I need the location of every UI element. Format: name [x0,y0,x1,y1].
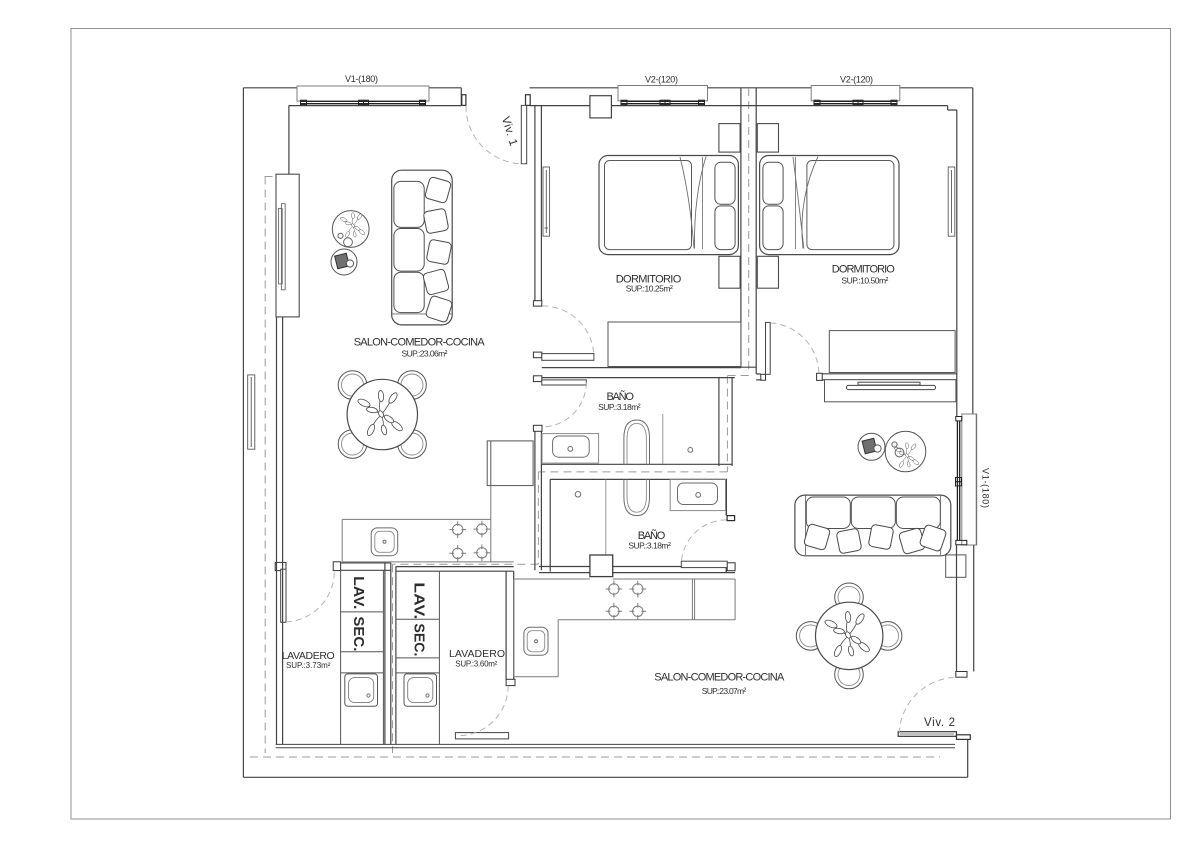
svg-text:V1-(180): V1-(180) [345,74,378,84]
svg-text:V1-(180): V1-(180) [981,468,991,508]
svg-text:SEC.: SEC. [350,616,367,651]
svg-text:LAVADERO: LAVADERO [449,648,505,660]
svg-text:SUP.:10.50m²: SUP.:10.50m² [841,276,888,286]
svg-text:SEC.: SEC. [410,623,427,656]
svg-text:V2-(120): V2-(120) [645,75,678,85]
svg-text:SUP.:3.18m²: SUP.:3.18m² [628,540,671,550]
svg-text:SUP.:3.73m²: SUP.:3.73m² [286,661,331,670]
svg-text:SUP.:23.06m²: SUP.:23.06m² [402,349,448,359]
svg-text:V2-(120): V2-(120) [840,75,873,85]
svg-text:Viv. 1: Viv. 1 [499,115,519,147]
svg-text:SALON-COMEDOR-COCINA: SALON-COMEDOR-COCINA [654,671,785,683]
svg-text:SUP.:23.07m²: SUP.:23.07m² [702,686,747,696]
svg-text:SUP.:3.18m²: SUP.:3.18m² [598,402,641,412]
svg-text:SALON-COMEDOR-COCINA: SALON-COMEDOR-COCINA [354,337,486,349]
svg-text:LAV.: LAV. [350,576,367,609]
svg-text:LAV.: LAV. [410,582,427,619]
svg-text:SUP.:3.60m²: SUP.:3.60m² [455,659,497,668]
svg-text:DORMITORIO: DORMITORIO [832,264,895,276]
svg-text:Viv. 2: Viv. 2 [924,717,955,729]
svg-text:SUP.:10.25m²: SUP.:10.25m² [626,283,673,293]
